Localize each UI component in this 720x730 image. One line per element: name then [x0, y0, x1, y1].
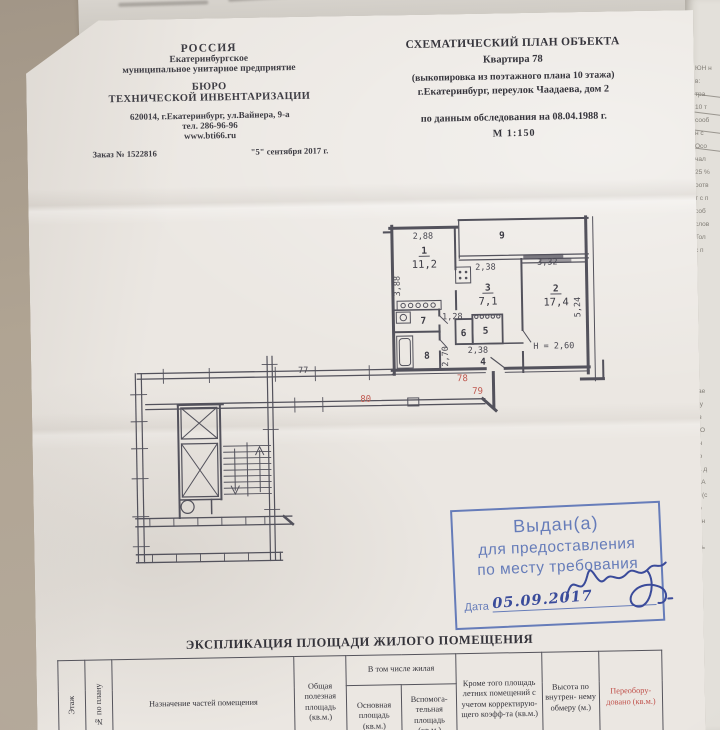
- illegible-text-smudge: [118, 0, 208, 7]
- explication-table: Этаж № по плану Назначение частей помеще…: [57, 650, 664, 730]
- room-7-number: 7: [420, 316, 426, 327]
- col-header-total-area: Общая полезная площадь (кв.м.): [293, 656, 347, 730]
- height-note: Н = 2,60: [533, 341, 574, 352]
- dim-2-38-hall: 2,38: [468, 346, 489, 356]
- room-8-number: 8: [424, 351, 430, 362]
- signature: [558, 538, 682, 629]
- col-header-height: Высота по внутрен- нему обмеру (м.): [541, 651, 600, 730]
- room-2-number: 2: [553, 283, 559, 294]
- survey-date-note: по данным обследования на 08.04.1988 г.: [353, 109, 675, 126]
- issue-stamp: Выдан(а) для предоставления по месту тре…: [450, 501, 665, 630]
- dim-2-38-kitchen: 2,38: [475, 262, 496, 272]
- plan-scale: М 1:150: [353, 125, 675, 142]
- document-title: СХЕМАТИЧЕСКИЙ ПЛАН ОБЪЕКТА: [351, 34, 673, 52]
- bti-header: РОССИЯ Екатеринбургское муниципальное ун…: [89, 40, 331, 159]
- dim-2-70: 2,70: [441, 346, 451, 367]
- apt-number-80: 80: [360, 395, 371, 405]
- room-6-number: 6: [461, 328, 467, 339]
- col-header-summer-area: Кроме того площадь летних помещений с уч…: [456, 652, 543, 730]
- plan-title-block: СХЕМАТИЧЕСКИЙ ПЛАН ОБЪЕКТА Квартира 78 (…: [351, 34, 675, 142]
- main-document-paper: РОССИЯ Екатеринбургское муниципальное ун…: [25, 10, 706, 730]
- room-9-number: 9: [499, 230, 505, 241]
- col-header-aux-area: Вспомога- тельная площадь (кв.м.): [401, 684, 457, 730]
- object-address: г.Екатеринбург, переулок Чаадаева, дом 2: [352, 82, 674, 99]
- explication-section: ЭКСПЛИКАЦИЯ ПЛОЩАДИ ЖИЛОГО ПОМЕЩЕНИЯ Эта…: [57, 630, 664, 730]
- paper-fragment-list: ЮН нв:тра10 тсообн сОсочал25 %оотвт с пс…: [695, 62, 712, 257]
- apt-number-79: 79: [472, 387, 483, 397]
- dim-3-32: 3,32: [537, 257, 558, 267]
- room-2-area: 17,4: [543, 296, 569, 308]
- apartment-subtitle: Квартира 78: [352, 51, 674, 68]
- dim-5-24: 5,24: [573, 297, 583, 318]
- room-4-number: 4: [480, 357, 486, 368]
- col-header-plan-number: № по плану: [85, 660, 114, 730]
- stamp-date-label: Дата: [464, 601, 489, 614]
- col-header-remodeled: Переобору- довано (кв.м.): [598, 650, 663, 730]
- room-1-area: 11,2: [412, 259, 438, 271]
- col-group-living: В том числе жилая: [346, 654, 457, 686]
- order-number: Заказ № 1522816: [92, 148, 157, 159]
- order-date: "5" сентября 2017 г.: [251, 145, 329, 156]
- room-3-number: 3: [485, 283, 491, 294]
- col-header-main-area: Основная площадь (кв.м.): [346, 685, 402, 730]
- room-5-number: 5: [483, 326, 489, 337]
- col-header-purpose: Назначение частей помещения: [112, 657, 295, 730]
- apt-number-77: 77: [298, 366, 308, 376]
- illegible-text-smudge: [228, 0, 288, 2]
- room-3-area: 7,1: [478, 295, 497, 307]
- col-header-floor: Этаж: [58, 660, 87, 730]
- dim-2-88: 2,88: [413, 232, 434, 242]
- dim-3-88: 3,88: [393, 276, 403, 297]
- apt-number-78: 78: [457, 374, 468, 384]
- room-1-number: 1: [421, 246, 427, 257]
- dim-1-28: 1,28: [442, 312, 463, 322]
